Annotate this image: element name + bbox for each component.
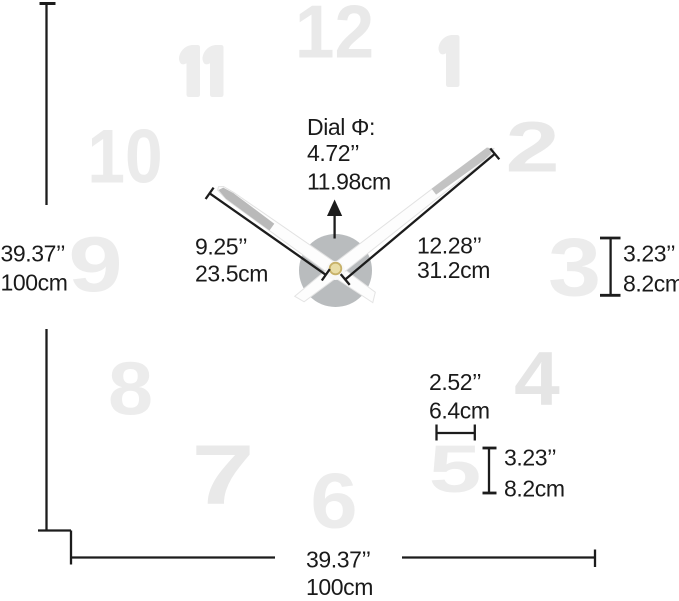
svg-text:Dial Φ:: Dial Φ:	[307, 114, 375, 140]
svg-text:8: 8	[108, 346, 153, 431]
svg-text:12: 12	[295, 0, 374, 74]
svg-text:23.5cm: 23.5cm	[195, 261, 268, 287]
svg-text:7: 7	[191, 429, 254, 522]
svg-text:8.2cm: 8.2cm	[623, 271, 679, 297]
svg-text:3.23’’: 3.23’’	[623, 241, 675, 267]
svg-text:4: 4	[514, 335, 560, 421]
svg-text:100cm: 100cm	[306, 574, 373, 600]
svg-text:5: 5	[429, 432, 482, 506]
svg-text:3.23’’: 3.23’’	[504, 445, 556, 471]
svg-text:11.98cm: 11.98cm	[307, 169, 391, 195]
svg-text:31.2cm: 31.2cm	[417, 257, 490, 283]
svg-text:6: 6	[310, 458, 357, 545]
svg-text:8.2cm: 8.2cm	[504, 476, 565, 502]
svg-text:9: 9	[68, 220, 122, 307]
svg-text:12.28’’: 12.28’’	[417, 233, 482, 259]
svg-text:100cm: 100cm	[1, 270, 68, 296]
svg-text:6.4cm: 6.4cm	[429, 398, 490, 424]
svg-text:10: 10	[87, 115, 162, 200]
svg-text:39.37’’: 39.37’’	[1, 241, 66, 267]
svg-text:2: 2	[505, 108, 559, 187]
svg-text:2.52’’: 2.52’’	[429, 369, 481, 395]
svg-text:9.25’’: 9.25’’	[195, 234, 247, 260]
svg-text:4.72’’: 4.72’’	[307, 140, 359, 166]
svg-text:39.37’’: 39.37’’	[306, 547, 371, 573]
svg-text:3: 3	[548, 220, 601, 313]
